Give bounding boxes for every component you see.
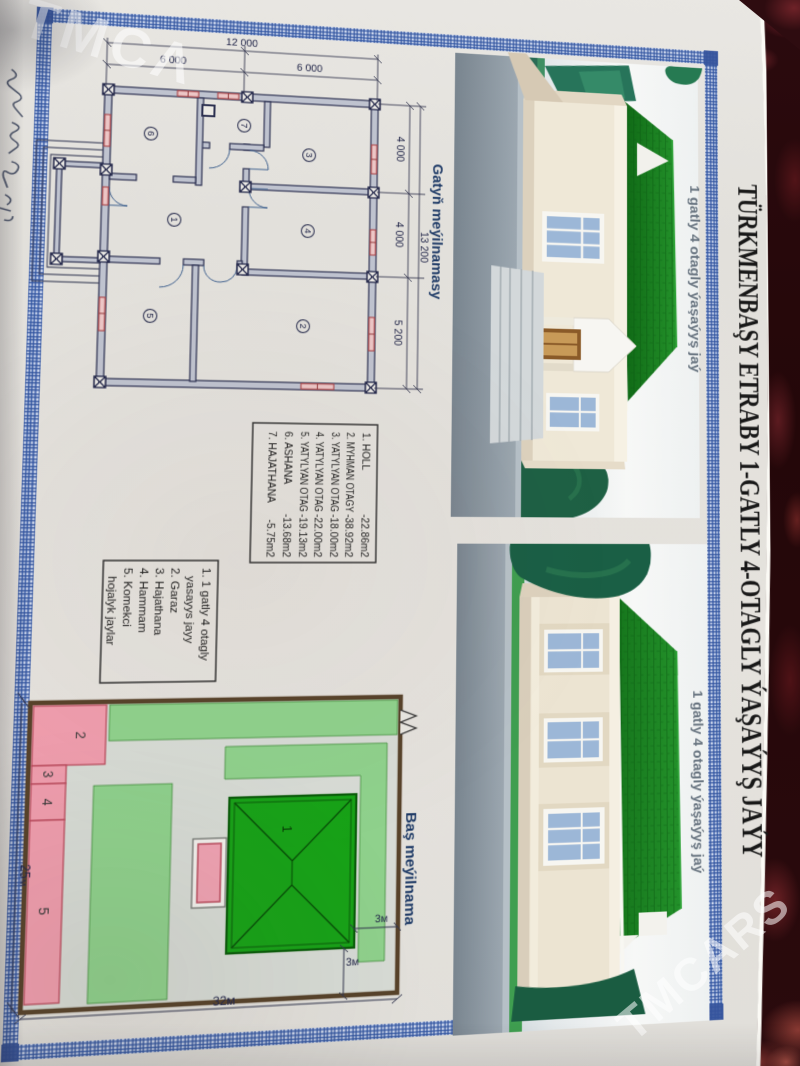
svg-text:-5.75m2: -5.75m2 — [264, 519, 277, 557]
svg-text:hojalyk jaylar: hojalyk jaylar — [103, 576, 119, 646]
svg-text:6. ASHANA: 6. ASHANA — [281, 431, 294, 485]
svg-text:3м: 3м — [346, 956, 360, 969]
svg-text:-22.00m2: -22.00m2 — [311, 514, 324, 558]
svg-text:-38.92m2: -38.92m2 — [342, 514, 354, 557]
svg-text:3м: 3м — [375, 913, 389, 926]
svg-text:2. Garaz: 2. Garaz — [167, 568, 182, 614]
svg-text:3: 3 — [304, 152, 315, 158]
svg-text:25: 25 — [17, 864, 32, 879]
svg-text:м: м — [18, 879, 30, 886]
svg-text:-22.86m2: -22.86m2 — [358, 514, 370, 557]
svg-text:2: 2 — [72, 731, 88, 739]
svg-text:6 000: 6 000 — [297, 62, 324, 75]
svg-text:5. Komekci: 5. Komekci — [119, 568, 134, 627]
svg-text:-19.13m2: -19.13m2 — [295, 514, 308, 558]
svg-text:6: 6 — [145, 131, 156, 137]
svg-text:5: 5 — [35, 907, 52, 916]
svg-text:3: 3 — [40, 770, 54, 778]
svg-text:7. HAJATHANA: 7. HAJATHANA — [265, 431, 278, 504]
svg-text:1. 1 gatly 4 otagly: 1. 1 gatly 4 otagly — [197, 568, 213, 662]
svg-text:12 000: 12 000 — [226, 37, 259, 50]
svg-text:5: 5 — [144, 313, 155, 319]
svg-text:5 200: 5 200 — [391, 320, 403, 347]
svg-text:4. YATYLYAN OTAG: 4. YATYLYAN OTAG — [312, 432, 325, 512]
svg-text:3. Hajathana: 3. Hajathana — [151, 568, 166, 636]
svg-text:4 000: 4 000 — [392, 222, 404, 248]
svg-text:13 200: 13 200 — [417, 232, 429, 264]
svg-text:1 gatly 4 otagly ýaşaýyş jaý: 1 gatly 4 otagly ýaşaýyş jaý — [690, 690, 707, 874]
svg-text:4: 4 — [39, 798, 53, 806]
svg-text:-13.68m2: -13.68m2 — [279, 514, 292, 558]
svg-text:1: 1 — [279, 825, 292, 832]
svg-text:1: 1 — [168, 217, 179, 223]
svg-text:Gatyň meýilnamasy: Gatyň meýilnamasy — [429, 164, 447, 300]
svg-text:4 000: 4 000 — [394, 136, 406, 162]
svg-text:7: 7 — [239, 123, 250, 129]
svg-text:32м: 32м — [212, 994, 235, 1009]
svg-text:3. YATYLYAN OTAG: 3. YATYLYAN OTAG — [327, 432, 340, 512]
svg-text:4. Hammam: 4. Hammam — [135, 568, 150, 633]
svg-text:1. HOLL: 1. HOLL — [359, 433, 371, 471]
svg-text:5. YATYLYAN OTAG: 5. YATYLYAN OTAG — [296, 432, 309, 512]
svg-text:yasayys jayy: yasayys jayy — [182, 576, 197, 644]
svg-text:2. MYHMAN OTAGY: 2. MYHMAN OTAGY — [343, 432, 356, 513]
svg-text:4: 4 — [302, 228, 313, 234]
svg-text:TÜRKMENBAŞY ETRABY 1-GATLY 4-O: TÜRKMENBAŞY ETRABY 1-GATLY 4-OTAGLY ÝAŞA… — [732, 184, 769, 859]
svg-text:-18.00m2: -18.00m2 — [327, 514, 340, 557]
svg-text:Baş meýilnama: Baş meýilnama — [402, 812, 421, 926]
svg-text:1 gatly 4 otagly ýaşaýyş jaý: 1 gatly 4 otagly ýaşaýyş jaý — [687, 185, 703, 373]
svg-text:2: 2 — [297, 323, 308, 329]
